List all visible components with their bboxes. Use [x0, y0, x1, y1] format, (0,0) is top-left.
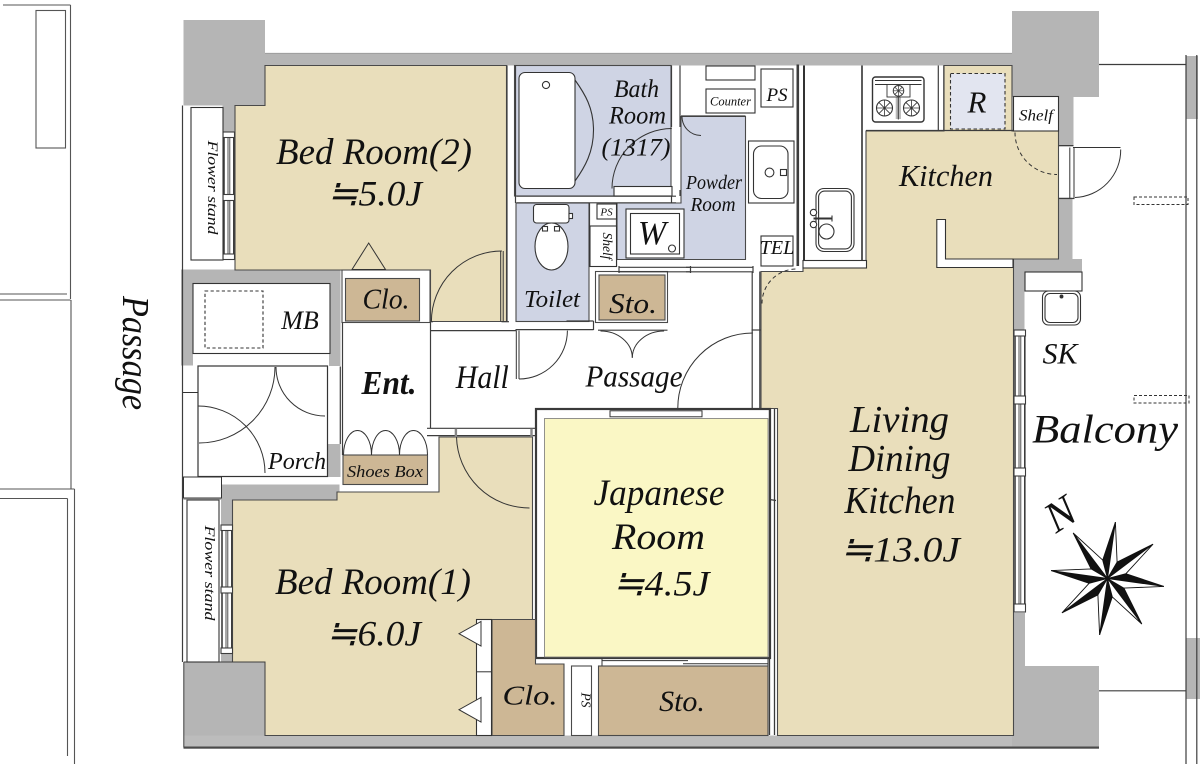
svg-text:Shoes Box: Shoes Box: [347, 462, 424, 481]
svg-text:Sto.: Sto.: [659, 685, 705, 718]
svg-text:Sto.: Sto.: [609, 288, 657, 320]
svg-text:PS: PS: [599, 207, 613, 219]
svg-text:Balcony: Balcony: [1032, 407, 1178, 452]
svg-text:Bed Room(2): Bed Room(2): [276, 132, 472, 173]
svg-text:Porch: Porch: [267, 449, 326, 475]
svg-text:Dining: Dining: [848, 438, 951, 480]
svg-text:PS: PS: [579, 692, 594, 708]
svg-text:PS: PS: [765, 85, 788, 106]
svg-text:Room: Room: [690, 194, 736, 216]
svg-text:Kitchen: Kitchen: [898, 158, 993, 193]
svg-text:Shelf: Shelf: [1019, 108, 1056, 125]
svg-text:Flower stand: Flower stand: [204, 139, 220, 235]
svg-text:TEL: TEL: [760, 237, 794, 259]
svg-text:≒13.0J: ≒13.0J: [840, 530, 962, 570]
svg-text:Japanese: Japanese: [594, 473, 725, 514]
svg-text:≒4.5J: ≒4.5J: [613, 564, 712, 604]
svg-text:Shelf: Shelf: [600, 233, 615, 262]
svg-text:Room: Room: [611, 517, 705, 558]
svg-text:Powder: Powder: [685, 172, 742, 194]
svg-text:Clo.: Clo.: [503, 681, 558, 711]
svg-text:Room: Room: [608, 103, 666, 130]
svg-text:(1317): (1317): [602, 135, 671, 162]
svg-text:≒6.0J: ≒6.0J: [326, 614, 423, 654]
svg-text:SK: SK: [1042, 338, 1079, 371]
svg-text:Passage: Passage: [585, 359, 683, 394]
svg-text:Living: Living: [849, 399, 949, 441]
svg-text:Clo.: Clo.: [363, 284, 410, 316]
svg-text:Passage: Passage: [114, 295, 156, 410]
svg-text:Bath: Bath: [614, 76, 659, 103]
svg-text:R: R: [967, 85, 987, 120]
svg-text:Bed Room(1): Bed Room(1): [275, 562, 471, 603]
svg-text:MB: MB: [280, 306, 319, 335]
svg-text:Toilet: Toilet: [524, 287, 581, 313]
svg-text:Counter: Counter: [710, 95, 751, 109]
svg-text:Hall: Hall: [455, 360, 509, 396]
svg-text:≒5.0J: ≒5.0J: [327, 174, 424, 214]
svg-text:Kitchen: Kitchen: [844, 480, 956, 522]
svg-text:Ent.: Ent.: [361, 365, 417, 402]
svg-text:Flower stand: Flower stand: [201, 524, 217, 621]
svg-text:W: W: [638, 215, 669, 252]
